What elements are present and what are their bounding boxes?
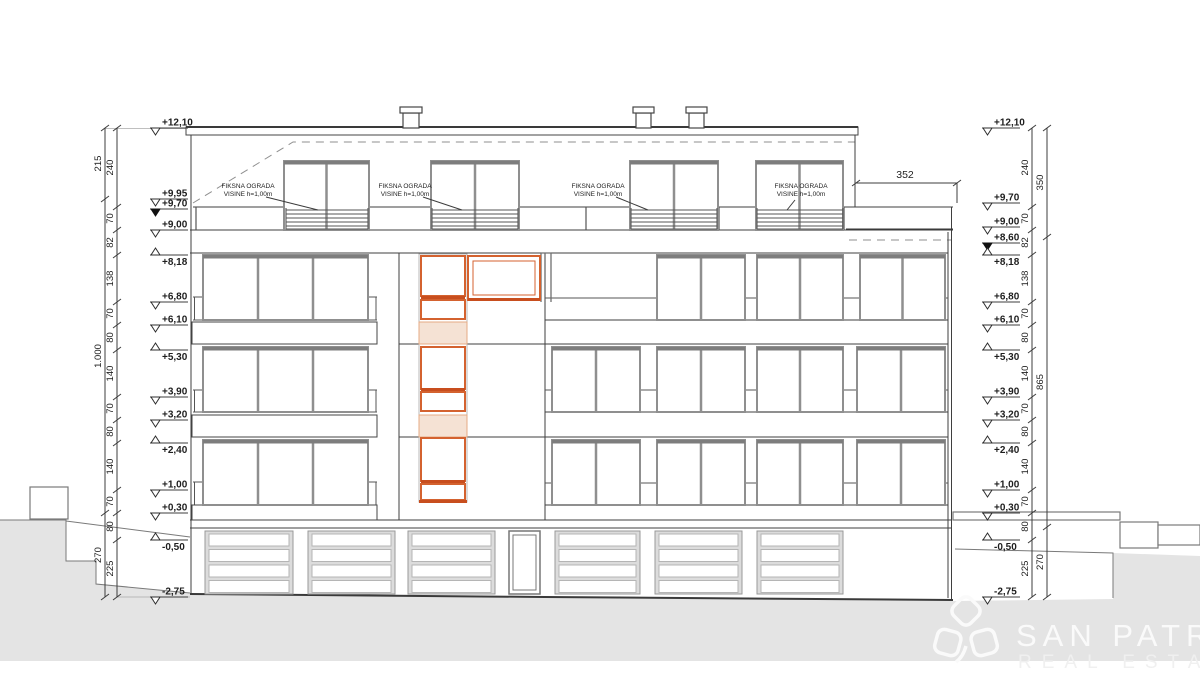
dimension-value: 225 <box>105 561 116 577</box>
elevation-value: -0,50 <box>994 542 1017 553</box>
elevation-value: +0,30 <box>162 503 188 514</box>
dimension-value: 80 <box>1020 332 1031 343</box>
garage-door <box>555 531 640 594</box>
entrance-door-panel <box>513 535 536 590</box>
window <box>657 255 745 320</box>
stair-window <box>421 256 465 296</box>
window <box>630 161 718 230</box>
right-terrain-step-2 <box>1158 525 1200 545</box>
elevation-value: +3,90 <box>162 387 188 398</box>
elevation-value: +8,60 <box>994 233 1020 244</box>
stair-window <box>421 438 465 481</box>
elevation-value: +12,10 <box>162 118 193 129</box>
elevation-value: +1,00 <box>994 480 1020 491</box>
elevation-value: +9,70 <box>162 199 188 210</box>
stair-window <box>421 300 465 319</box>
stairwell-slab-band <box>419 322 467 344</box>
railing-label-line2: VISINE h=1,00m <box>224 191 273 198</box>
garage-door <box>408 531 495 594</box>
dimension-value: 70 <box>105 403 116 414</box>
dimension-value: 70 <box>105 308 116 319</box>
chimney <box>689 113 704 128</box>
right-terrain-step <box>1120 522 1158 548</box>
stair-window <box>421 347 465 389</box>
elevation-value: +1,00 <box>162 480 188 491</box>
chimney <box>403 113 419 128</box>
elevation-value: +5,30 <box>994 352 1020 363</box>
elevation-value: +12,10 <box>994 118 1025 129</box>
dimension-value: 225 <box>1020 561 1031 577</box>
elevation-value: +5,30 <box>162 352 188 363</box>
dimension-value: 80 <box>105 426 116 437</box>
elevation-value: +6,10 <box>162 315 188 326</box>
railing-label-line2: VISINE h=1,00m <box>381 191 430 198</box>
elevation-value: -2,75 <box>162 587 185 598</box>
window <box>552 440 640 505</box>
window <box>203 347 368 412</box>
dimension-value: 1.000 <box>93 344 104 368</box>
dimension-value: 240 <box>1020 160 1031 176</box>
dimension-value: 350 <box>1035 175 1046 191</box>
elevation-value: +8,18 <box>162 257 188 268</box>
window <box>757 440 843 505</box>
window <box>431 161 519 230</box>
dimension-value: 70 <box>1020 403 1031 414</box>
dimension-value: 270 <box>1035 554 1046 570</box>
elevation-value: +3,90 <box>994 387 1020 398</box>
dimension-value: 70 <box>1020 308 1031 319</box>
right-terrace-slab <box>953 512 1120 520</box>
roof-slab <box>186 127 858 135</box>
railing-label-line2: VISINE h=1,00m <box>574 191 623 198</box>
railing-label-line1: FIKSNA OGRADA <box>378 183 432 190</box>
elevation-sheet: 2151.00027024070821387080140708014070802… <box>0 0 1200 694</box>
window <box>860 255 945 320</box>
railing-label-line1: FIKSNA OGRADA <box>221 183 275 190</box>
logo-subtitle: REAL ESTATE <box>1018 652 1200 673</box>
window <box>657 347 745 412</box>
dimension-value: 138 <box>105 271 116 287</box>
elevation-value: +2,40 <box>162 445 188 456</box>
dimension-value: 140 <box>105 366 116 382</box>
chimney-cap <box>400 107 422 113</box>
dimension-value: 82 <box>1020 237 1031 248</box>
window <box>203 440 368 505</box>
dimension-value: 80 <box>105 521 116 532</box>
dimension-value: 70 <box>1020 213 1031 224</box>
window <box>203 255 368 320</box>
elevation-drawing: 2151.00027024070821387080140708014070802… <box>0 0 1200 694</box>
elevation-value: +9,70 <box>994 193 1020 204</box>
elevation-value: +3,20 <box>994 410 1020 421</box>
chimney-cap <box>633 107 654 113</box>
window <box>757 255 843 320</box>
dimension-value: 865 <box>1035 374 1046 390</box>
dimension-value: 138 <box>1020 271 1031 287</box>
stairwell-slab-band <box>419 415 467 437</box>
elevation-value: +6,80 <box>994 292 1020 303</box>
stair-window <box>421 484 465 500</box>
elevation-value: +0,30 <box>994 503 1020 514</box>
garage-door <box>205 531 293 594</box>
chimney-cap <box>686 107 707 113</box>
dimension-value: 140 <box>105 459 116 475</box>
dimension-value: 80 <box>1020 521 1031 532</box>
elevation-value: -0,50 <box>162 542 185 553</box>
elevation-value: +3,20 <box>162 410 188 421</box>
dimension-value: 80 <box>1020 426 1031 437</box>
dimension-value: 215 <box>93 156 104 172</box>
elevation-value: +9,00 <box>994 217 1020 228</box>
window <box>857 440 945 505</box>
garage-door <box>655 531 742 594</box>
window <box>757 347 843 412</box>
chimney <box>636 113 651 128</box>
balcony-slab <box>192 505 377 520</box>
elevation-value: -2,75 <box>994 587 1017 598</box>
window <box>857 347 945 412</box>
window <box>552 347 640 412</box>
balcony-slab <box>192 322 377 344</box>
railing-label-line1: FIKSNA OGRADA <box>774 183 828 190</box>
elevation-value: +6,10 <box>994 315 1020 326</box>
dimension-value: 140 <box>1020 366 1031 382</box>
stair-window <box>421 392 465 411</box>
elevation-value: +9,00 <box>162 220 188 231</box>
dimension-value: 70 <box>1020 496 1031 507</box>
window <box>284 161 369 230</box>
garage-door <box>757 531 843 594</box>
logo-name: SAN PATRIK <box>1016 618 1200 653</box>
railing-label-line1: FIKSNA OGRADA <box>571 183 625 190</box>
dimension-value: 70 <box>105 496 116 507</box>
dimension-value: 270 <box>93 547 104 563</box>
window <box>657 440 745 505</box>
balcony-slab <box>192 415 377 437</box>
elevation-value: +2,40 <box>994 445 1020 456</box>
dimension-value: 140 <box>1020 459 1031 475</box>
dimension-352-value: 352 <box>896 169 914 181</box>
elevation-value: +8,18 <box>994 257 1020 268</box>
garage-door <box>308 531 395 594</box>
railing-label-line2: VISINE h=1,00m <box>777 191 826 198</box>
dimension-value: 240 <box>105 160 116 176</box>
elevation-value: +6,80 <box>162 292 188 303</box>
stair-window-top <box>468 256 540 300</box>
dimension-value: 82 <box>105 237 116 248</box>
dimension-value: 80 <box>105 332 116 343</box>
left-retaining-wall <box>30 487 68 519</box>
dimension-value: 70 <box>105 213 116 224</box>
